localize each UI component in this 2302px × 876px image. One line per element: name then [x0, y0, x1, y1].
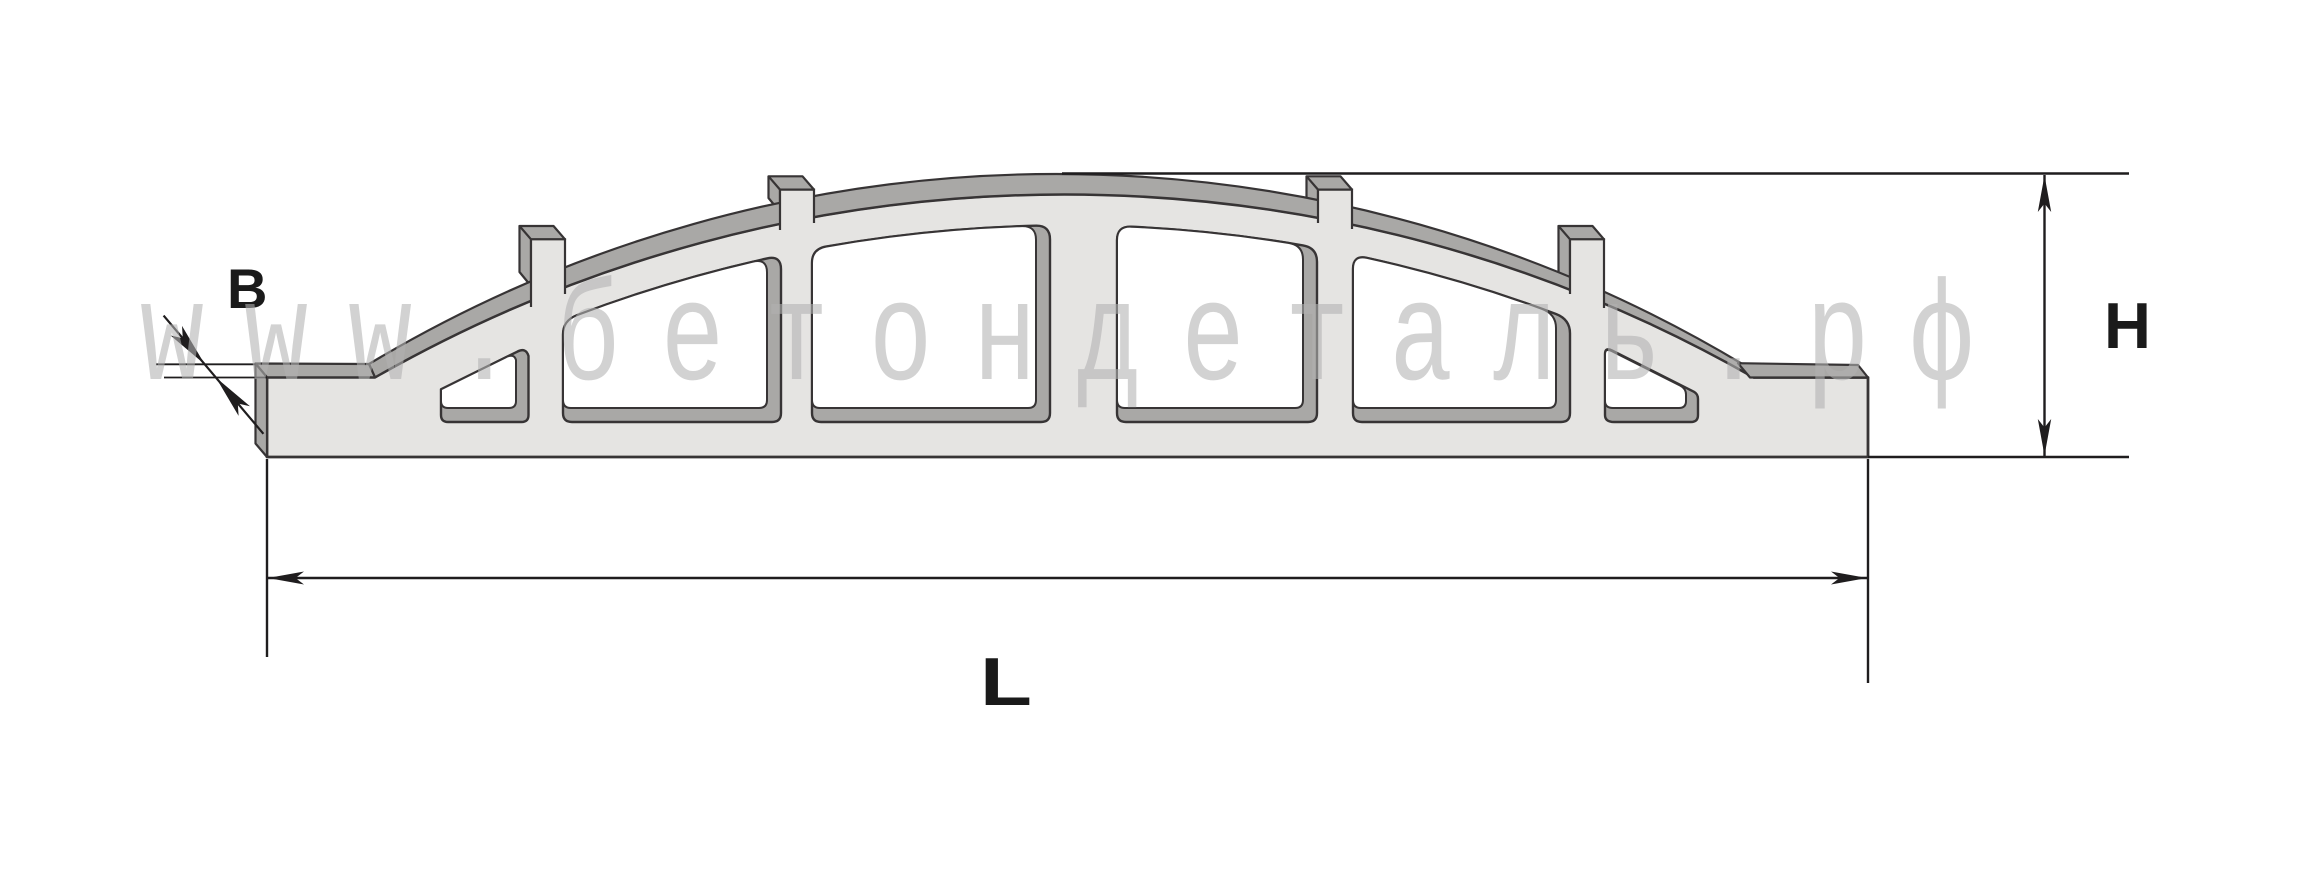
svg-text:www.бетондеталь.рф: www.бетондеталь.рф	[140, 261, 2014, 422]
svg-text:L: L	[980, 644, 1032, 720]
svg-text:H: H	[2104, 289, 2151, 362]
